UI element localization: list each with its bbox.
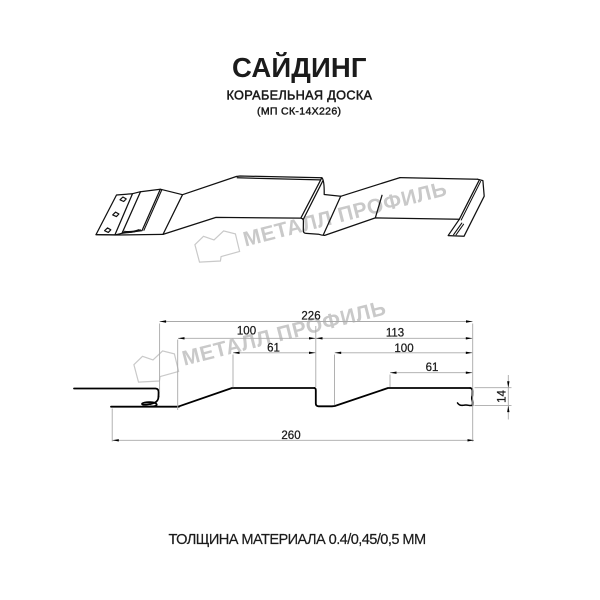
svg-text:61: 61 [267, 342, 280, 354]
svg-text:(МП СК-14Х226): (МП СК-14Х226) [257, 105, 341, 117]
svg-text:100: 100 [394, 343, 413, 355]
svg-text:ТОЛЩИНА МАТЕРИАЛА 0.4/0,45/0,5: ТОЛЩИНА МАТЕРИАЛА 0.4/0,45/0,5 ММ [169, 532, 427, 548]
svg-text:226: 226 [301, 311, 320, 323]
svg-text:61: 61 [426, 362, 439, 374]
svg-text:МЕТАЛЛ ПРОФИЛЬ: МЕТАЛЛ ПРОФИЛЬ [241, 178, 449, 252]
svg-text:113: 113 [386, 328, 404, 340]
svg-text:КОРАБЕЛЬНАЯ ДОСКА: КОРАБЕЛЬНАЯ ДОСКА [227, 88, 373, 102]
svg-text:100: 100 [237, 326, 256, 338]
svg-text:14: 14 [497, 390, 509, 403]
svg-text:САЙДИНГ: САЙДИНГ [232, 52, 367, 83]
svg-text:МЕТАЛЛ ПРОФИЛЬ: МЕТАЛЛ ПРОФИЛЬ [180, 297, 388, 371]
svg-text:260: 260 [281, 430, 300, 442]
